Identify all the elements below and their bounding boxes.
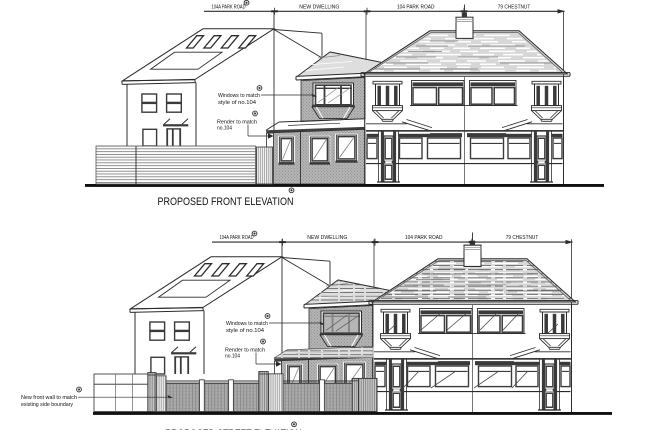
svg-text:existing side boundary: existing side boundary: [21, 402, 73, 408]
svg-text:New front wall to match: New front wall to match: [21, 395, 77, 401]
svg-text:PROPOSED FRONT ELEVATION: PROPOSED FRONT ELEVATION: [158, 196, 294, 208]
